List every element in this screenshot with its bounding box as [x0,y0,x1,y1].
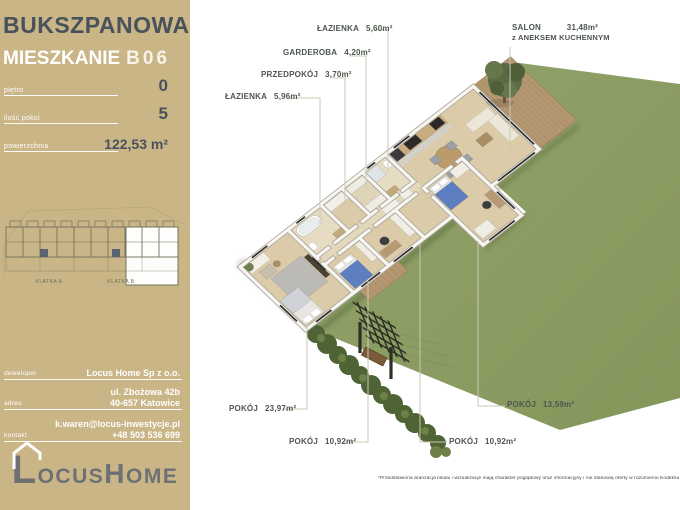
room-label-pokoj-2397: POKÓJ 23,97m² [229,404,296,413]
room-label-lazienka-560: ŁAZIENKA 5,60m² [317,24,393,33]
highlighted-unit-b06 [126,227,178,285]
room-area: 5,96m² [274,92,301,101]
address-line-2: 40-657 Katowice [110,398,180,409]
contact-row-contact: kontakt k.waren@locus-inwestycje.pl +48 … [4,412,182,442]
contact-email[interactable]: k.waren@locus-inwestycje.pl [55,419,180,430]
unit-number: B06 [126,48,170,70]
room-name: GARDEROBA [283,48,337,57]
building-minimap: KLATKA A KLATKA B [0,205,190,297]
room-name: POKÓJ [229,404,258,413]
developer-logo: LOCUSHOME [0,450,190,490]
room-name: PRZEDPOKÓJ [261,70,318,79]
stairwell-b-core [112,249,120,257]
spec-row-rooms: ilość pokoi 5 [4,107,172,124]
spec-label: ilość pokoi [4,115,40,122]
room-label-pokoj-1092-b: POKÓJ 10,92m² [449,437,516,446]
spec-row-area: powierzchnia 122,53 m² [4,129,172,152]
project-title: BUKSZPANOWA [3,12,190,39]
logo-text-ome: OME [126,465,178,488]
room-area: 23,97m² [265,404,296,413]
room-name: POKÓJ [449,437,478,446]
stairwell-a-core [40,249,48,257]
room-area: 5,60m² [366,24,393,33]
contact-label: kontakt [4,432,27,439]
room-label-pokoj-1359: POKÓJ 13,59m² [507,400,574,409]
contact-phone[interactable]: +48 503 536 699 [55,430,180,441]
room-name: ŁAZIENKA [317,24,359,33]
room-label-salon: SALON 31,48m² z ANEKSEM KUCHENNYM [512,23,610,42]
unit-title: MIESZKANIE B06 [3,48,170,70]
contact-row-address: adres ul. Zbożowa 42b 40-657 Katowice [4,383,182,410]
spec-value: 122,53 m² [104,136,168,152]
house-icon [8,439,44,471]
disclaimer-text: *Przedstawiona aranżacja lokalu i wizual… [378,476,680,481]
spec-label: piętro [4,87,23,94]
address-line-1: ul. Zbożowa 42b [110,387,180,398]
room-name: POKÓJ [507,400,536,409]
room-name: POKÓJ [289,437,318,446]
room-area: 4,20m² [344,48,371,57]
sidebar: BUKSZPANOWA MIESZKANIE B06 piętro 0 iloś… [0,0,190,510]
stairwell-a-label: KLATKA A [36,279,63,285]
spec-value: 0 [159,76,168,96]
spec-label: powierzchnia [4,143,48,150]
room-area: 31,48m² [567,23,598,32]
logo-letter-h: H [104,458,126,489]
room-area: 10,92m² [325,437,356,446]
contact-label: adres [4,400,22,407]
developer-name: Locus Home Sp z o.o. [86,368,180,379]
room-label-przedpokoj: PRZEDPOKÓJ 3,70m² [261,70,352,79]
contact-label: deweloper [4,370,37,377]
logo-text-ocus: OCUS [38,465,105,488]
room-area: 3,70m² [325,70,352,79]
room-sublabel: z ANEKSEM KUCHENNYM [512,33,610,42]
room-area: 13,59m² [543,400,574,409]
room-name: ŁAZIENKA [225,92,267,101]
contact-row-developer: deweloper Locus Home Sp z o.o. [4,358,182,380]
room-area: 10,92m² [485,437,516,446]
floorplan-sheet: ŁAZIENKA 5,60m² GARDEROBA 4,20m² PRZEDPO… [0,0,680,510]
room-label-lazienka-596: ŁAZIENKA 5,96m² [225,92,301,101]
spec-value: 5 [159,104,168,124]
room-label-garderoba: GARDEROBA 4,20m² [283,48,371,57]
stairwell-b-label: KLATKA B [107,279,134,285]
room-name: SALON [512,23,541,32]
room-label-pokoj-1092-a: POKÓJ 10,92m² [289,437,356,446]
logo-letter-l: L [12,448,38,492]
spec-row-floor: piętro 0 [4,79,172,96]
unit-label: MIESZKANIE [3,48,120,70]
